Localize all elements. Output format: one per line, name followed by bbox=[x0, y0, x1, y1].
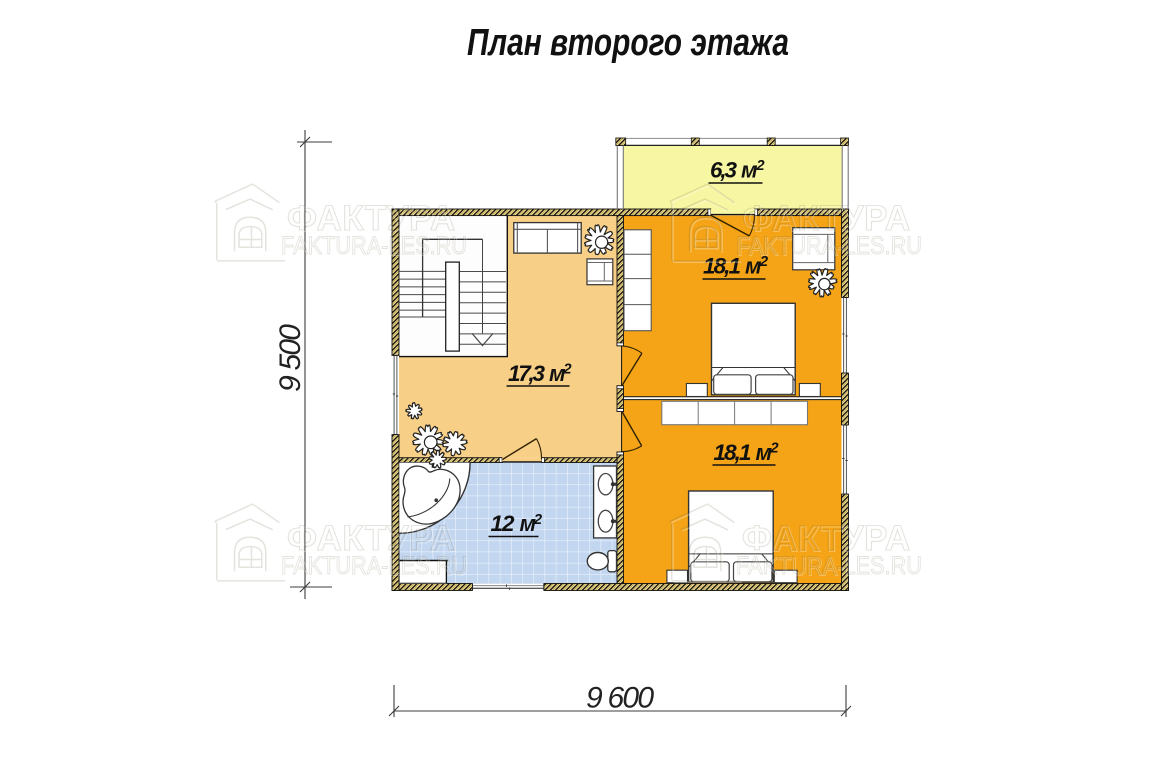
svg-text:12: 12 bbox=[491, 511, 515, 536]
svg-text:2: 2 bbox=[563, 362, 572, 378]
svg-text:9 500: 9 500 bbox=[274, 324, 307, 392]
svg-text:м: м bbox=[741, 158, 758, 183]
svg-text:18,1: 18,1 bbox=[714, 440, 752, 465]
svg-text:6,3: 6,3 bbox=[710, 158, 737, 183]
svg-text:17,3: 17,3 bbox=[508, 361, 545, 386]
svg-text:План второго этажа: План второго этажа bbox=[467, 22, 789, 64]
svg-text:2: 2 bbox=[756, 158, 765, 174]
svg-text:2: 2 bbox=[533, 512, 542, 528]
svg-text:9 600: 9 600 bbox=[586, 682, 654, 715]
svg-text:2: 2 bbox=[770, 441, 779, 457]
